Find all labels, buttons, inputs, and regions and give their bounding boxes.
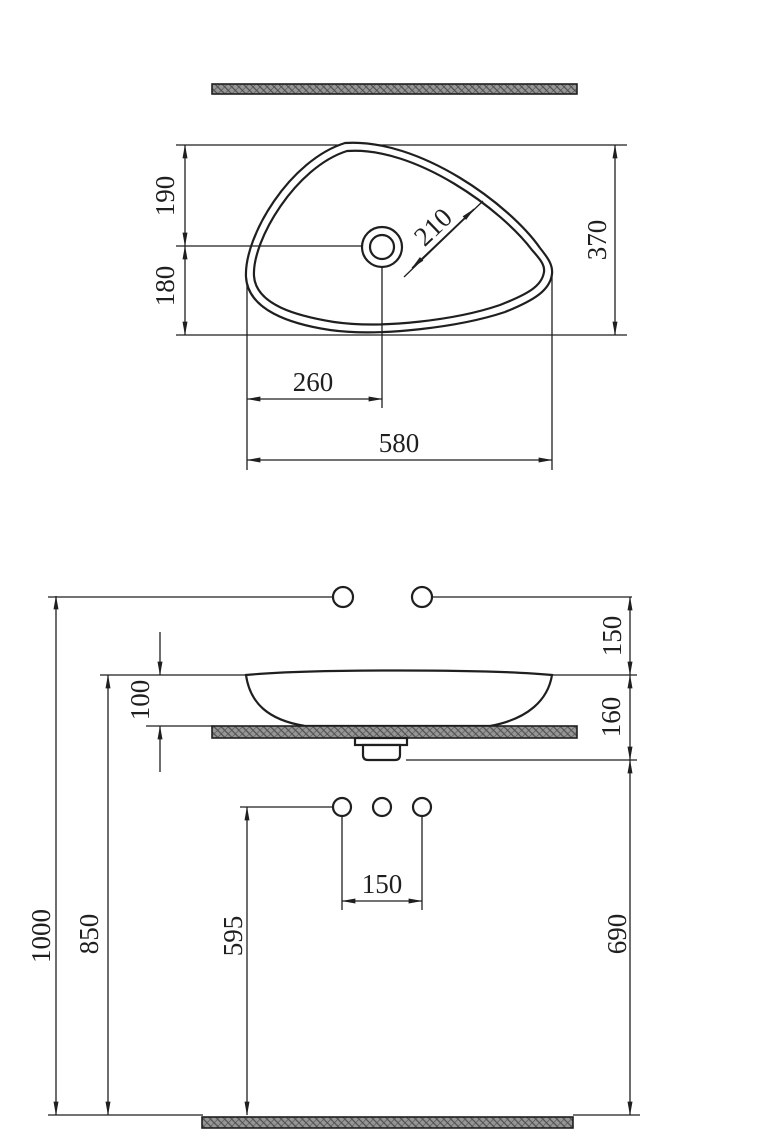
dim-label-850: 850 <box>74 914 104 955</box>
dim-label-160: 160 <box>596 697 626 738</box>
wall-tap-hole-right <box>412 587 432 607</box>
drain-body <box>363 745 400 760</box>
dimension-depth-right: 370 <box>582 145 615 335</box>
dim-label-1000: 1000 <box>26 909 56 963</box>
top-view: 210 190 180 370 260 580 <box>150 84 627 470</box>
dim-label-260: 260 <box>293 367 334 397</box>
dimension-overall-width: 580 <box>247 428 552 460</box>
drain-hole-inner <box>370 235 394 259</box>
technical-drawing-canvas: 210 190 180 370 260 580 <box>0 0 760 1140</box>
wall-section-bar <box>212 84 577 94</box>
front-view: 150 160 690 100 1000 850 <box>26 587 640 1128</box>
dimension-basin-height: 100 <box>125 632 213 772</box>
dim-label-190: 190 <box>150 176 180 217</box>
dim-label-180: 180 <box>150 266 180 307</box>
dimension-depth-left: 190 180 <box>150 145 185 335</box>
wall-tap-hole-left <box>333 587 353 607</box>
dim-label-100: 100 <box>125 680 155 721</box>
deck-tap-hole-center <box>373 798 391 816</box>
deck-tap-hole-right <box>413 798 431 816</box>
dimension-overall-height: 1000 <box>26 596 56 1115</box>
deck-tap-holes: 595 150 <box>218 798 431 1115</box>
dim-label-690: 690 <box>602 914 632 955</box>
drawing-page: 210 190 180 370 260 580 <box>0 0 760 1140</box>
dim-label-150-right: 150 <box>597 616 627 657</box>
deck-tap-hole-left <box>333 798 351 816</box>
floor-section-bar <box>202 1117 573 1128</box>
dimension-drain-offset: 260 <box>247 367 382 399</box>
dim-label-370: 370 <box>582 220 612 261</box>
dim-label-150-holes: 150 <box>362 869 403 899</box>
dimension-rim-height: 850 <box>74 675 108 1115</box>
dim-label-595: 595 <box>218 916 248 957</box>
countertop-section-bar <box>212 726 577 738</box>
dim-label-580: 580 <box>379 428 420 458</box>
basin-side-profile <box>246 671 552 727</box>
